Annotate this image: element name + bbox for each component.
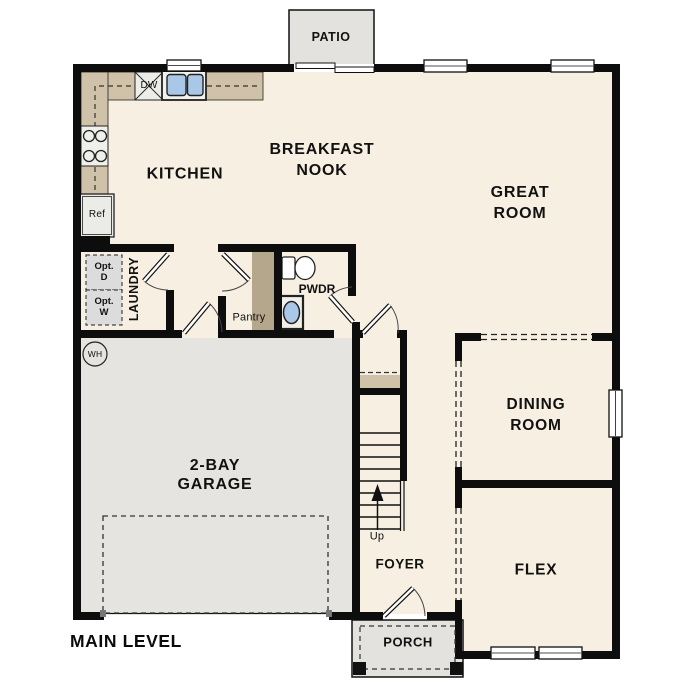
kitchen-sink-icon — [162, 70, 206, 100]
porch-label: PORCH — [383, 636, 432, 649]
optional-washer-label: Opt. W — [95, 296, 114, 318]
breakfast-nook-label: BREAKFAST NOOK — [270, 139, 375, 181]
pantry-label: Pantry — [233, 313, 266, 324]
dining-room-label: DINING ROOM — [506, 394, 565, 436]
laundry-label: LAUNDRY — [128, 257, 141, 321]
great-room-window-left — [424, 60, 467, 72]
sliding-patio-door — [294, 63, 374, 73]
up-label: Up — [370, 532, 384, 543]
refrigerator-label: Ref — [89, 210, 105, 220]
floor-plan: PATIO KITCHEN BREAKFAST NOOK GREAT ROOM … — [0, 0, 687, 687]
foyer-label: FOYER — [375, 557, 424, 571]
flex-window-left — [491, 647, 535, 659]
cooktop-icon — [81, 126, 108, 166]
dishwasher-label: DW — [140, 81, 157, 91]
closet-shelf-strip — [360, 375, 400, 388]
toilet-icon — [282, 257, 315, 280]
garage-label: 2-BAY GARAGE — [177, 456, 252, 494]
kitchen-window — [167, 60, 201, 71]
plan-title: MAIN LEVEL — [70, 631, 182, 652]
water-heater-label: WH — [88, 350, 103, 359]
floor-plan-drawing — [0, 0, 687, 687]
dining-flex-floor — [458, 341, 612, 653]
flex-window-right — [539, 647, 582, 659]
powder-label: PWDR — [299, 283, 336, 295]
great-room-label: GREAT ROOM — [491, 182, 550, 224]
patio-label: PATIO — [312, 31, 351, 44]
dining-window — [609, 390, 622, 437]
great-room-window-right — [551, 60, 594, 72]
powder-sink-icon — [280, 296, 303, 329]
optional-dryer-label: Opt. D — [95, 261, 114, 283]
kitchen-label: KITCHEN — [147, 164, 224, 185]
flex-label: FLEX — [515, 562, 558, 578]
